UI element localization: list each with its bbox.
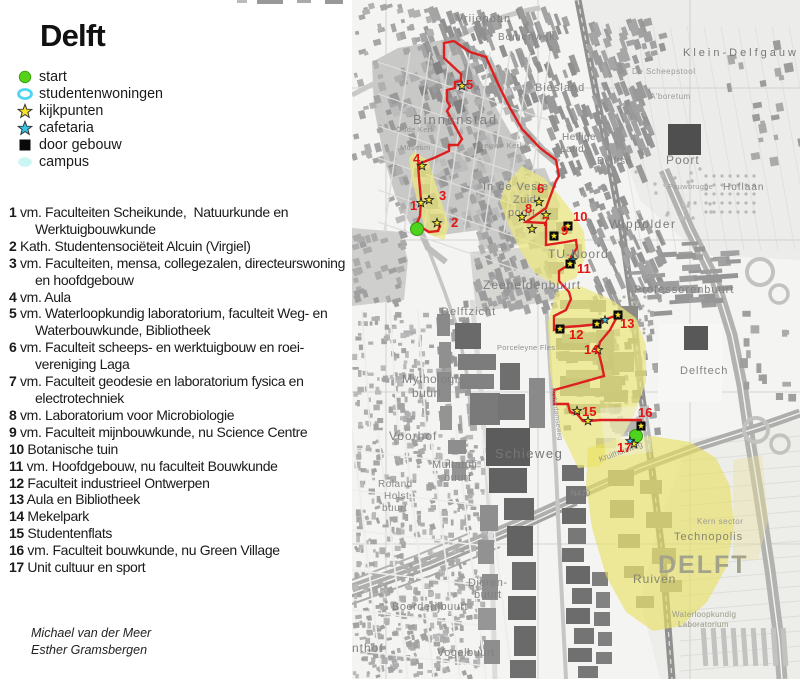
svg-text:17: 17 (617, 440, 631, 455)
svg-text:Oude Kerk: Oude Kerk (396, 125, 435, 134)
svg-text:buurt: buurt (474, 589, 502, 601)
svg-text:buurt: buurt (412, 386, 442, 400)
svg-text:Roland: Roland (378, 479, 413, 490)
svg-text:DELFT: DELFT (658, 551, 749, 579)
svg-text:Bomenwijk: Bomenwijk (498, 32, 555, 43)
svg-text:N470: N470 (571, 489, 591, 498)
svg-text:Waterloopkundig: Waterloopkundig (672, 610, 736, 619)
svg-text:Schieweg: Schieweg (495, 446, 563, 461)
svg-text:Technopolis: Technopolis (674, 531, 743, 543)
svg-text:9: 9 (561, 223, 568, 238)
svg-text:Laboratorium: Laboratorium (678, 620, 729, 629)
svg-text:Biesland: Biesland (535, 82, 585, 94)
svg-text:14: 14 (584, 342, 599, 357)
svg-text:Delftech: Delftech (680, 365, 728, 377)
svg-text:Hoflaan: Hoflaan (723, 182, 764, 193)
svg-text:Boerderijbuurt: Boerderijbuurt (392, 601, 468, 613)
svg-text:5: 5 (466, 77, 473, 92)
svg-text:6: 6 (537, 181, 544, 196)
svg-text:2: 2 (451, 215, 458, 230)
svg-text:Voorhof: Voorhof (389, 429, 437, 443)
svg-text:Vrijenban: Vrijenban (456, 13, 511, 25)
svg-text:Poort: Poort (666, 153, 700, 167)
svg-text:10: 10 (573, 209, 587, 224)
svg-text:De Scheepstool: De Scheepstool (632, 67, 695, 76)
svg-text:A'boretum: A'boretum (650, 92, 691, 101)
svg-text:Delftse: Delftse (597, 156, 632, 167)
svg-text:Land: Land (560, 144, 584, 155)
svg-text:Klein-Delfgauw: Klein-Delfgauw (683, 47, 799, 59)
svg-text:Kern sector: Kern sector (697, 517, 743, 526)
svg-text:13: 13 (620, 316, 634, 331)
svg-text:1: 1 (410, 198, 417, 213)
svg-text:TU-Noord: TU-Noord (548, 247, 609, 261)
svg-text:Vogelbuurt: Vogelbuurt (437, 647, 495, 659)
svg-text:Delftzicht: Delftzicht (441, 306, 496, 318)
svg-text:8: 8 (525, 201, 532, 216)
svg-text:Wippolder: Wippolder (609, 217, 677, 231)
svg-text:Multatuli: Multatuli (432, 459, 477, 471)
svg-text:buurt: buurt (444, 472, 472, 484)
svg-text:12: 12 (569, 327, 583, 342)
svg-text:nthof: nthof (352, 641, 384, 655)
svg-text:7: 7 (542, 214, 549, 229)
svg-text:11: 11 (577, 261, 591, 276)
svg-text:Professorenbuurt: Professorenbuurt (634, 284, 734, 296)
svg-text:3: 3 (439, 188, 446, 203)
svg-text:Porceleyne Fles: Porceleyne Fles (497, 343, 555, 352)
svg-text:Mythologie: Mythologie (402, 372, 465, 386)
svg-text:15: 15 (582, 404, 596, 419)
svg-text:Heilige: Heilige (562, 132, 596, 143)
svg-text:Dieren-: Dieren- (468, 577, 508, 589)
svg-text:Zeeheldenbuurt: Zeeheldenbuurt (483, 278, 581, 292)
svg-text:Pauwbrugge: Pauwbrugge (668, 182, 713, 191)
svg-text:16: 16 (638, 405, 652, 420)
svg-text:4: 4 (413, 151, 421, 166)
svg-text:buurt: buurt (382, 503, 407, 514)
svg-text:Nieuwe Kerke: Nieuwe Kerke (476, 141, 529, 150)
svg-text:Holst: Holst (384, 491, 409, 502)
